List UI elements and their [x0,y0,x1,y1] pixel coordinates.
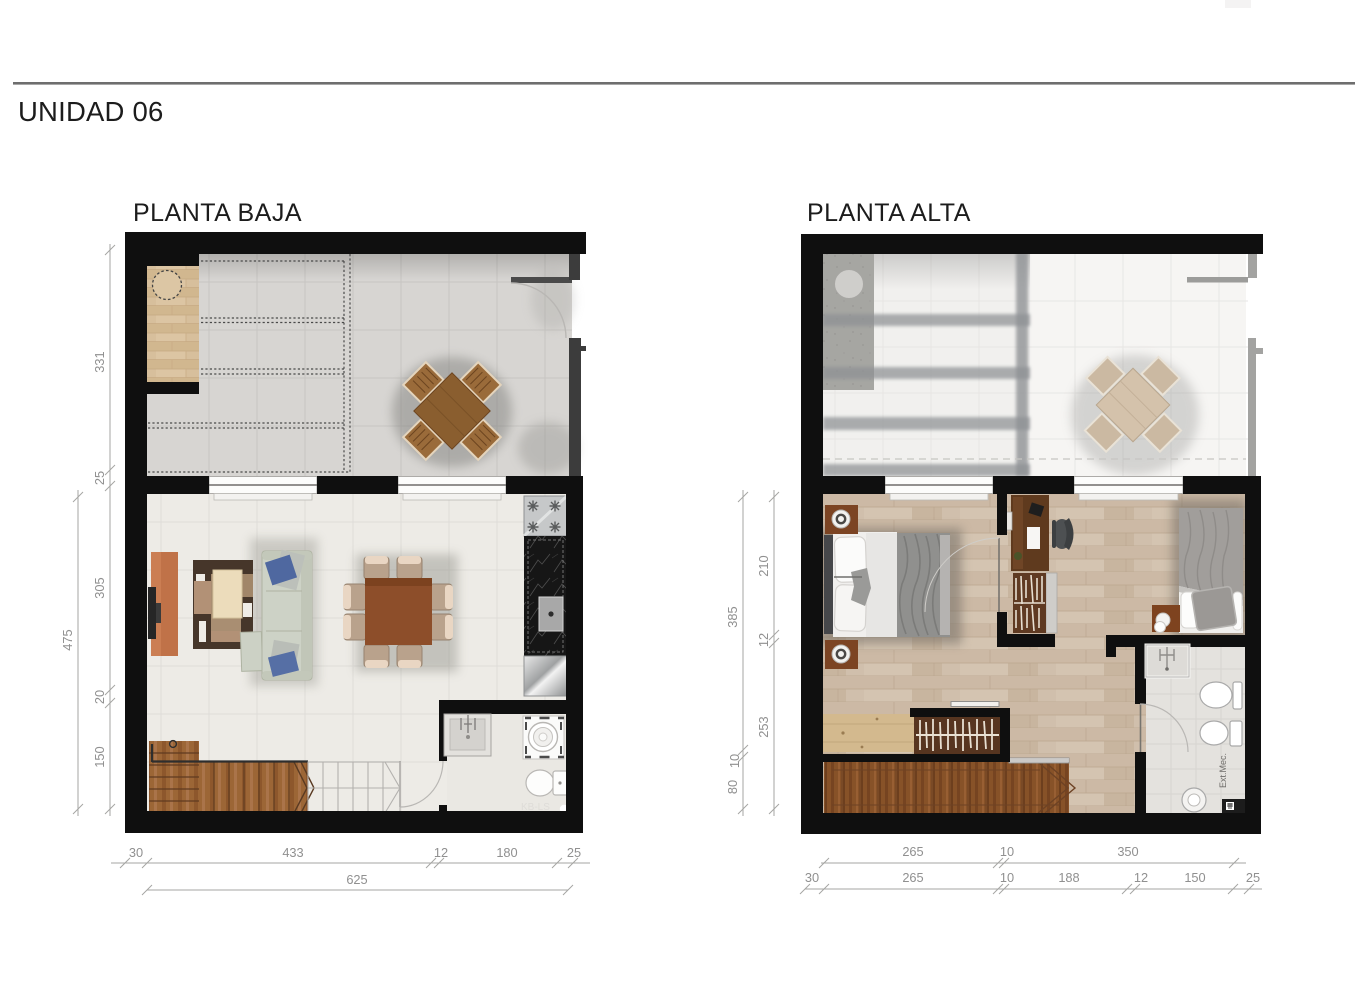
svg-text:188: 188 [1058,870,1079,885]
svg-text:253: 253 [756,716,771,737]
svg-text:20: 20 [92,690,107,704]
svg-text:385: 385 [725,606,740,627]
svg-text:10: 10 [1000,844,1014,859]
svg-text:UNIDAD 06: UNIDAD 06 [18,96,163,127]
svg-text:150: 150 [92,746,107,767]
svg-text:PLANTA BAJA: PLANTA BAJA [133,199,302,227]
svg-text:30: 30 [805,870,819,885]
svg-text:625: 625 [346,872,367,887]
svg-text:10: 10 [1000,870,1014,885]
svg-text:433: 433 [282,845,303,860]
svg-text:331: 331 [92,351,107,372]
svg-text:150: 150 [1184,870,1205,885]
svg-text:180: 180 [496,845,517,860]
svg-text:12: 12 [756,633,771,647]
svg-text:265: 265 [902,844,923,859]
svg-text:265: 265 [902,870,923,885]
svg-text:350: 350 [1117,844,1138,859]
svg-text:80: 80 [725,780,740,794]
svg-text:12: 12 [434,845,448,860]
svg-text:PLANTA ALTA: PLANTA ALTA [807,199,971,227]
svg-text:Ext.Mec.: Ext.Mec. [1218,753,1228,788]
svg-text:25: 25 [567,845,581,860]
svg-text:30: 30 [129,845,143,860]
svg-text:475: 475 [60,629,75,650]
svg-text:12: 12 [1134,870,1148,885]
svg-text:305: 305 [92,577,107,598]
svg-text:25: 25 [92,471,107,485]
svg-text:10: 10 [727,754,742,768]
svg-text:25: 25 [1246,870,1260,885]
svg-text:210: 210 [756,555,771,576]
